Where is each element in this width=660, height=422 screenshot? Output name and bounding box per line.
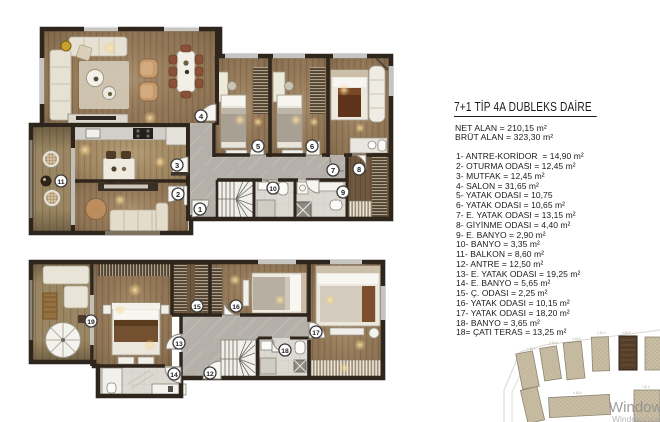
svg-text:7-BLK: 7-BLK [641, 385, 651, 389]
svg-text:4-BLK: 4-BLK [597, 331, 607, 335]
svg-text:3: 3 [175, 161, 179, 170]
svg-text:13: 13 [175, 341, 183, 348]
svg-text:19: 19 [87, 319, 95, 326]
svg-text:17: 17 [312, 330, 320, 337]
svg-text:2: 2 [176, 190, 180, 199]
svg-text:5-BLK: 5-BLK [622, 331, 632, 335]
svg-text:2-BLK: 2-BLK [549, 341, 559, 345]
svg-text:15: 15 [193, 304, 201, 311]
svg-text:9: 9 [341, 188, 345, 197]
svg-text:16: 16 [232, 304, 240, 311]
svg-text:5: 5 [256, 142, 260, 151]
svg-text:7: 7 [331, 166, 335, 175]
svg-text:6: 6 [310, 142, 314, 151]
svg-text:10: 10 [269, 186, 277, 193]
svg-text:18: 18 [281, 348, 289, 355]
svg-text:6-BLK: 6-BLK [573, 391, 583, 395]
svg-text:12: 12 [206, 371, 214, 378]
svg-text:11: 11 [57, 179, 64, 186]
svg-text:14: 14 [170, 372, 178, 379]
svg-text:1-BLK: 1-BLK [527, 347, 537, 351]
svg-text:8: 8 [357, 165, 361, 174]
svg-text:1: 1 [198, 205, 202, 214]
